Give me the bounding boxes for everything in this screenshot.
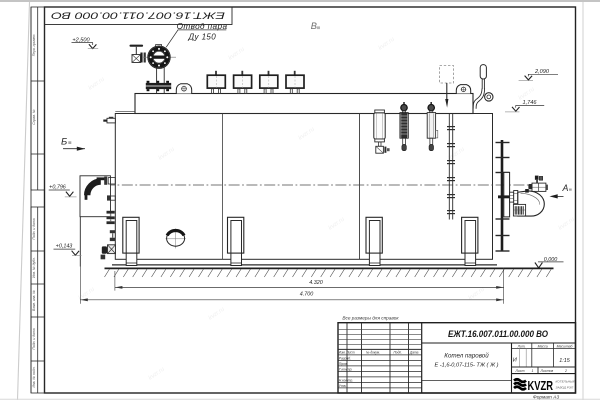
svg-text:ЗАВОД РЭП: ЗАВОД РЭП (556, 386, 575, 390)
svg-text:№ докум.: № докум. (366, 351, 380, 355)
svg-text:Пров.: Пров. (339, 362, 348, 366)
svg-text:И: И (513, 358, 517, 364)
svg-text:Масса: Масса (538, 344, 548, 348)
svg-text:Все размеры для справок: Все размеры для справок (342, 315, 399, 320)
svg-text:Разраб.: Разраб. (339, 357, 351, 361)
svg-text:2: 2 (564, 369, 567, 373)
svg-text:ЕЖТ.16.007.011.00.000 ВО: ЕЖТ.16.007.011.00.000 ВО (50, 9, 225, 20)
svg-text:А: А (562, 183, 569, 193)
svg-text:В: В (311, 21, 317, 31)
svg-text:Масштаб: Масштаб (557, 344, 573, 348)
svg-text:Н.контр.: Н.контр. (339, 379, 353, 383)
svg-text:4.700: 4.700 (300, 291, 314, 297)
svg-text:4.320: 4.320 (309, 280, 323, 286)
svg-text:Справ. №: Справ. № (32, 109, 36, 125)
svg-text:Котел паровой: Котел паровой (444, 353, 489, 360)
svg-text:ЕЖТ.16.007.011.00.000 ВО: ЕЖТ.16.007.011.00.000 ВО (448, 329, 548, 340)
svg-text:Т.контр.: Т.контр. (339, 368, 353, 372)
svg-text:Ду 150: Ду 150 (187, 32, 216, 41)
svg-text:Лист: Лист (515, 369, 525, 373)
svg-text:Подп. и дата: Подп. и дата (32, 218, 36, 239)
svg-text:KVZR: KVZR (528, 378, 554, 393)
svg-text:Формат А3: Формат А3 (533, 395, 560, 400)
svg-text:Е -1,6-0,07-115- ТЖ ( Ж ): Е -1,6-0,07-115- ТЖ ( Ж ) (435, 363, 499, 369)
svg-text:1:15: 1:15 (559, 358, 570, 364)
svg-text:Подп. и дата: Подп. и дата (32, 328, 36, 349)
svg-text:1: 1 (532, 369, 534, 373)
svg-text:Инв. № подл.: Инв. № подл. (32, 366, 36, 387)
svg-text:Утв.: Утв. (339, 384, 347, 388)
svg-text:Взам. инв. №: Взам. инв. № (32, 290, 36, 311)
svg-text:Б: Б (61, 137, 67, 148)
svg-text:Изм. Лист: Изм. Лист (339, 351, 355, 355)
svg-text:Инв. № дубл.: Инв. № дубл. (32, 257, 36, 278)
svg-text:Лит.: Лит. (517, 344, 526, 348)
svg-text:Дата: Дата (409, 351, 419, 355)
svg-text:Подп.: Подп. (394, 351, 403, 355)
svg-text:Перв. примен.: Перв. примен. (32, 34, 36, 57)
svg-text:КОТЕЛЬНЫЙ: КОТЕЛЬНЫЙ (556, 379, 576, 383)
svg-text:Листов: Листов (540, 369, 554, 373)
